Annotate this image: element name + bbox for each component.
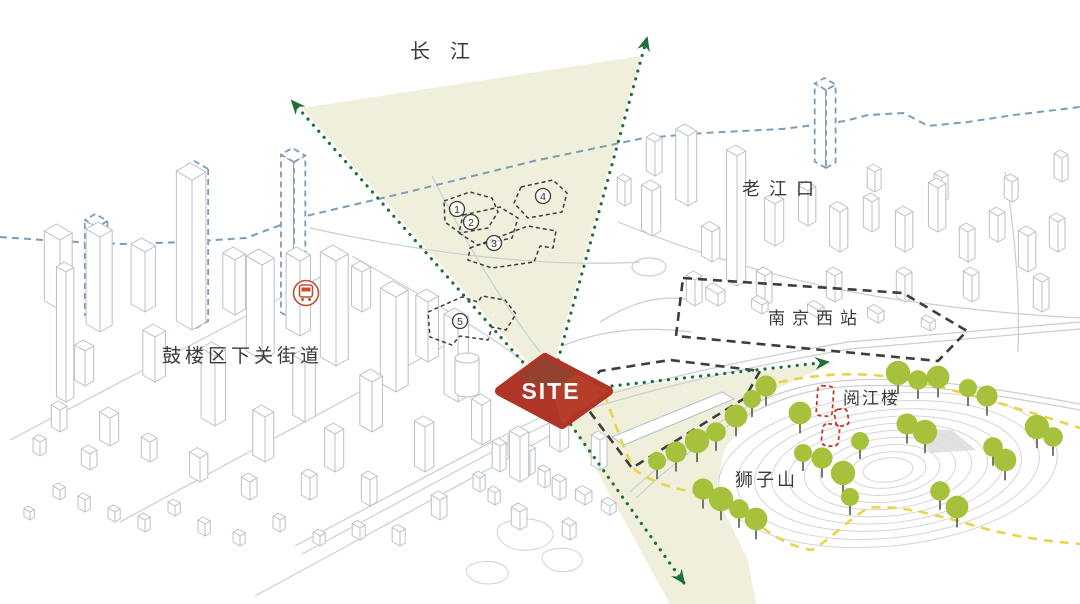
building — [352, 261, 371, 312]
tree — [908, 370, 928, 399]
cylinder-building — [455, 353, 479, 397]
label-yuejiang-tower: 阅江楼 — [843, 389, 900, 408]
building — [895, 206, 912, 252]
circled-number-marker: 1 — [450, 202, 465, 217]
building — [617, 174, 631, 206]
building — [392, 525, 405, 547]
label-nanjing-west-station: 南京西站 — [768, 309, 864, 328]
building — [1018, 226, 1035, 272]
building — [727, 145, 746, 286]
building — [642, 180, 661, 236]
building — [488, 486, 500, 505]
building — [141, 433, 157, 462]
building — [1049, 213, 1065, 252]
building — [989, 207, 1005, 242]
tree — [851, 432, 869, 459]
site-analysis-map: SITE 12345 长江 老江口 鼓楼区下关街道 南京西站 阅江楼 狮子山 — [0, 0, 1080, 604]
building — [131, 238, 155, 312]
building — [416, 289, 439, 362]
building — [492, 438, 506, 472]
tree — [976, 385, 997, 415]
building — [830, 202, 848, 253]
building — [473, 471, 485, 492]
building — [190, 448, 208, 483]
building — [301, 469, 317, 500]
building — [1004, 174, 1018, 202]
circled-number-label: 1 — [454, 204, 460, 216]
building — [273, 513, 285, 532]
tree — [841, 488, 859, 515]
building — [431, 491, 447, 520]
proposed-tower-outline — [815, 78, 836, 168]
building — [51, 401, 67, 432]
building — [1054, 150, 1068, 182]
building — [352, 521, 365, 541]
building — [575, 486, 592, 506]
building — [33, 435, 46, 457]
building — [552, 474, 566, 500]
building — [702, 222, 720, 263]
building — [676, 124, 697, 206]
building — [108, 505, 120, 522]
building — [56, 262, 73, 402]
building — [510, 426, 529, 482]
building — [86, 222, 112, 332]
contour-line — [862, 455, 914, 484]
building — [75, 340, 94, 386]
map-svg: SITE 12345 长江 老江口 鼓楼区下关街道 南京西站 阅江楼 狮子山 — [0, 0, 1080, 604]
circled-number-label: 5 — [457, 316, 463, 328]
building — [360, 369, 383, 432]
building — [313, 529, 325, 546]
building — [325, 423, 344, 472]
building — [168, 499, 180, 516]
tree — [1043, 427, 1063, 456]
label-laojiangkou: 老江口 — [742, 179, 823, 199]
building — [511, 503, 527, 530]
arrowhead-icon — [637, 34, 654, 52]
building — [765, 193, 784, 246]
building — [686, 271, 702, 306]
circled-number-marker: 3 — [487, 236, 502, 251]
tree — [794, 444, 812, 471]
building — [380, 281, 408, 392]
circled-number-label: 2 — [468, 217, 474, 229]
building — [863, 193, 879, 232]
building — [706, 283, 725, 306]
building — [53, 483, 65, 500]
building — [138, 513, 150, 532]
building — [246, 249, 274, 360]
circled-number-marker: 2 — [464, 215, 479, 230]
building — [472, 394, 491, 445]
circled-number-label: 4 — [540, 191, 546, 203]
tree — [959, 379, 977, 406]
building — [361, 471, 377, 506]
building — [253, 405, 274, 462]
site-label: SITE — [521, 378, 580, 404]
building — [868, 305, 885, 324]
label-gulou-street: 鼓楼区下关街道 — [162, 345, 323, 367]
building — [81, 445, 97, 470]
building — [233, 529, 245, 546]
tree — [994, 449, 1017, 481]
building — [646, 133, 662, 176]
metro-icon — [294, 281, 319, 306]
circled-number-marker: 4 — [536, 189, 551, 204]
building — [928, 178, 945, 232]
building — [223, 247, 246, 315]
tree — [745, 508, 768, 540]
building — [963, 267, 979, 302]
building — [538, 465, 550, 488]
building — [415, 416, 434, 472]
building — [176, 163, 206, 330]
label-lion-mountain: 狮子山 — [735, 470, 798, 490]
building — [100, 407, 119, 446]
building — [198, 517, 210, 536]
circled-number-label: 3 — [491, 238, 497, 250]
label-yangtze-river: 长江 — [410, 40, 490, 63]
building — [320, 245, 348, 366]
building — [921, 315, 935, 331]
circled-number-marker: 5 — [453, 314, 468, 329]
building — [24, 506, 34, 520]
building — [1033, 273, 1049, 312]
building — [78, 493, 90, 512]
building — [867, 164, 881, 192]
building — [959, 223, 975, 262]
building — [241, 473, 257, 500]
tree — [811, 447, 832, 477]
building — [562, 518, 576, 540]
building — [826, 267, 842, 302]
